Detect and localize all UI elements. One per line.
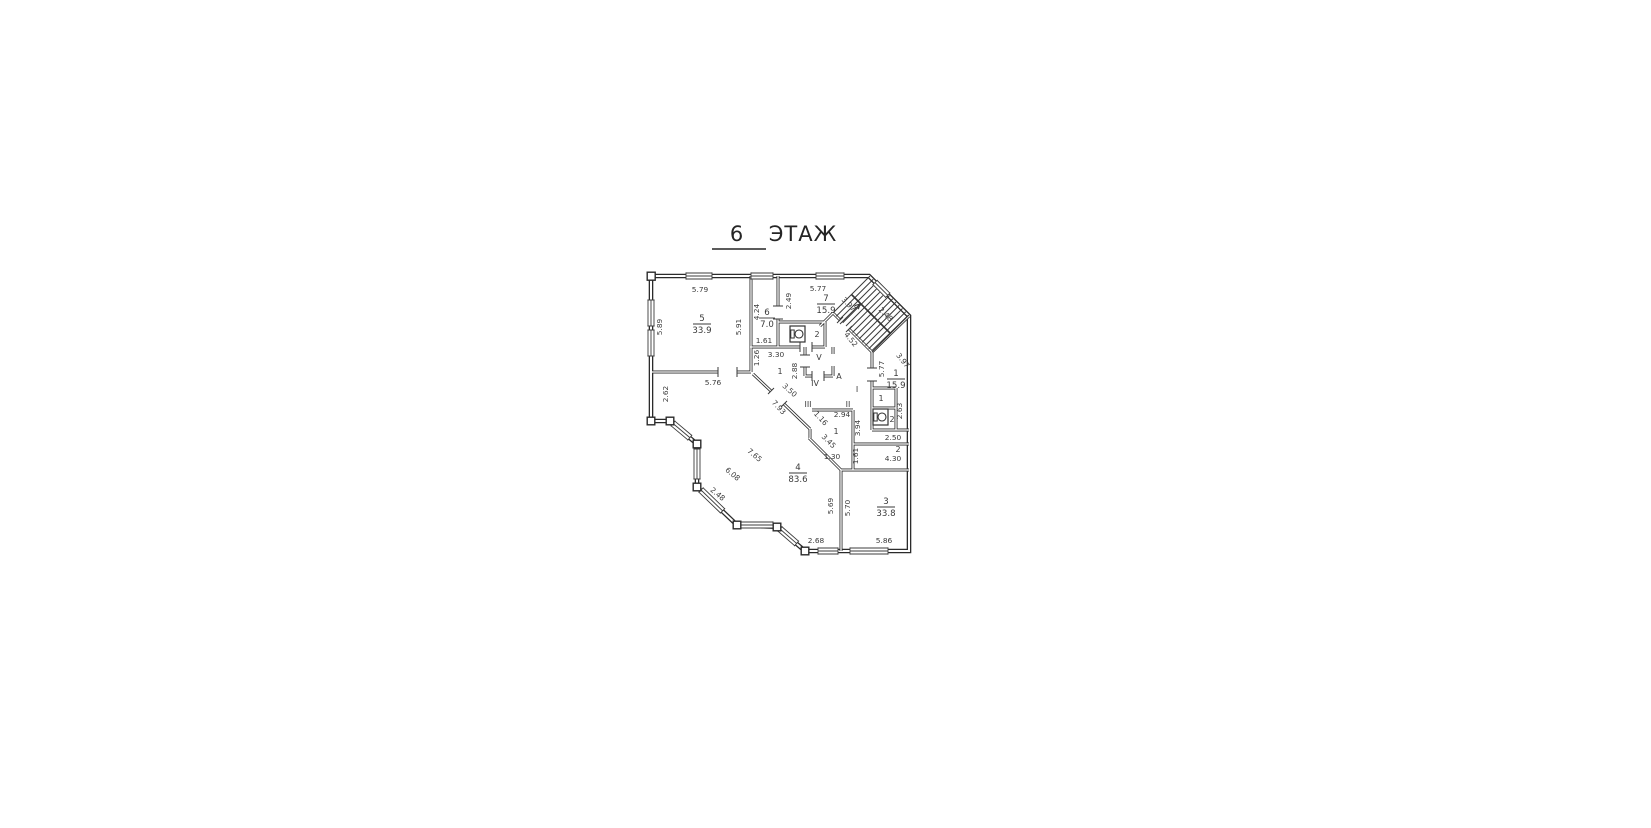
dim-label: 1.16: [812, 409, 830, 427]
room-number: 5: [699, 314, 704, 324]
room-label: 7 15.9: [816, 294, 835, 316]
zone-label: 1: [878, 394, 883, 403]
room-label: 1 15.9: [886, 369, 905, 391]
room-label: 4 83.6: [788, 463, 807, 485]
dim-label: 5.86: [876, 536, 893, 545]
zone-label: 1: [777, 367, 782, 376]
room-area: 7.0: [760, 320, 774, 330]
dim-label: 1.30: [824, 452, 841, 461]
room-number: 6: [764, 308, 769, 318]
room-label: 5 33.9: [692, 314, 711, 336]
dim-label: 7.93: [770, 398, 788, 416]
dim-label: 1.26: [752, 349, 761, 366]
dim-label: 2.88: [790, 362, 799, 379]
room-area: 33.9: [692, 326, 711, 336]
zone-label: II: [846, 400, 851, 409]
zone-label: 2: [889, 415, 894, 424]
dim-label: 4.52: [842, 330, 859, 348]
window-symbol: [693, 449, 700, 479]
window-symbol: [686, 272, 712, 279]
dim-label: 5.70: [843, 499, 852, 516]
dim-label: 2.50: [885, 433, 902, 442]
room-label: 3 33.8: [876, 497, 895, 519]
dim-label: 5.76: [705, 378, 722, 387]
dim-label: 2.63: [895, 402, 904, 419]
dim-label: 5.91: [734, 318, 743, 335]
dim-label: 5.89: [655, 318, 664, 335]
dim-label: 3.30: [768, 350, 785, 359]
dim-label: 5.77: [877, 360, 886, 377]
dim-label: 4.30: [885, 454, 902, 463]
room-area: 15.9: [886, 381, 905, 391]
zone-label: III: [804, 400, 811, 409]
dim-label: 7.65: [745, 446, 764, 464]
window-symbol: [647, 330, 654, 356]
zone-label: V: [816, 353, 822, 362]
toilet-icon: [873, 409, 888, 425]
room-area: 83.6: [788, 475, 807, 485]
dim-label: 2.94: [834, 410, 851, 419]
window-symbol: [751, 272, 773, 279]
zone-label: 2: [814, 330, 819, 339]
dim-label: 3.50: [781, 381, 799, 399]
window-symbol: [741, 521, 773, 528]
room-number: 1: [893, 369, 898, 379]
room-number: 7: [823, 294, 828, 304]
room-number: 3: [883, 497, 888, 507]
window-symbol: [850, 547, 888, 554]
dim-label: 5.69: [826, 497, 835, 514]
dim-label: 5.79: [692, 285, 709, 294]
room-number: 4: [795, 463, 800, 473]
zone-label: IV: [811, 379, 819, 388]
window-symbol: [872, 280, 890, 298]
zone-label: 2: [895, 445, 900, 454]
window-symbol: [647, 300, 654, 326]
dim-label: 2.48: [877, 305, 895, 323]
window-symbol: [818, 547, 838, 554]
floor-title: 6 ЭТАЖ: [712, 222, 837, 249]
dim-label: 1.61: [756, 336, 773, 345]
corner-pilasters: [647, 272, 809, 555]
dim-label: 6.08: [723, 465, 742, 483]
floor-plan-canvas: 6 ЭТАЖ: [0, 0, 1651, 828]
dim-label: 1.61: [851, 447, 860, 464]
dim-label: 5.77: [810, 284, 827, 293]
staircase: [833, 276, 909, 352]
zone-label: 1: [833, 427, 838, 436]
dim-label: 2.62: [661, 386, 670, 402]
dim-label: 2.49: [784, 292, 793, 309]
document-page: 6 ЭТАЖ: [0, 0, 1651, 828]
room-label: 6 7.0: [759, 308, 775, 330]
zone-label: I: [856, 385, 858, 394]
toilet-icon: [790, 326, 805, 342]
window-symbol: [816, 272, 844, 279]
dim-label: 3.94: [853, 419, 862, 436]
dim-label: 2.68: [808, 536, 825, 545]
floor-title-word: ЭТАЖ: [769, 222, 837, 246]
zone-label: A: [836, 372, 842, 381]
dim-label: 4.24: [752, 303, 761, 320]
floor-title-number: 6: [730, 222, 744, 246]
room-area: 15.9: [816, 306, 835, 316]
room-area: 33.8: [876, 509, 895, 519]
